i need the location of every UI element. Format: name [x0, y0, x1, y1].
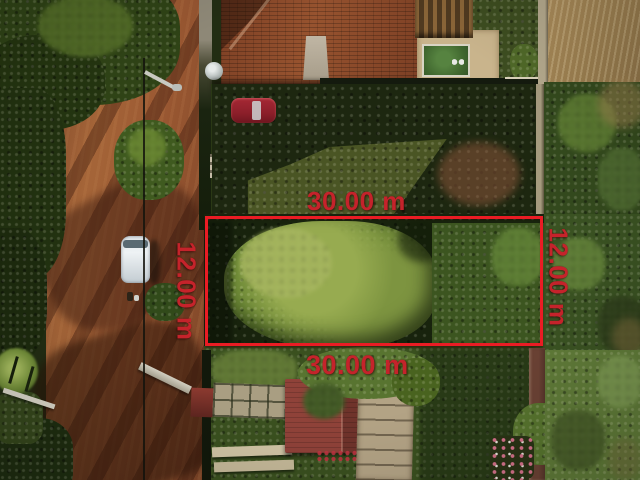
lot-boundary-rectangle — [205, 216, 543, 346]
backyard-right-wall — [536, 84, 544, 218]
wooden-pergola — [415, 0, 473, 38]
right-veg-bottom-light — [598, 356, 640, 408]
red-car-windshield — [252, 101, 261, 120]
measurement-label-bottom: 30.00 m — [306, 350, 409, 381]
aerial-lot-photo: 30.00 m 30.00 m 12.00 m 12.00 m — [0, 0, 640, 480]
dry-grass-field — [546, 0, 640, 90]
right-dry-patch — [598, 80, 640, 128]
pool-garden-bush — [510, 44, 538, 80]
pool-ladder — [452, 58, 464, 66]
roadside-tree-highlight — [128, 128, 166, 166]
backyard-dirt-patch — [438, 142, 520, 206]
right-veg-highlight-2 — [598, 148, 640, 210]
dark-red-structure — [191, 388, 214, 418]
chimney — [303, 36, 329, 80]
utility-pole — [143, 58, 145, 480]
measurement-label-top: 30.00 m — [307, 186, 406, 217]
flower-bed — [490, 436, 534, 480]
right-veg-bottom-brown — [608, 438, 640, 480]
stone-pavers — [212, 383, 289, 420]
road-object-light — [134, 295, 139, 301]
left-edge-trees-mid — [0, 228, 47, 363]
measurement-label-left: 12.00 m — [171, 242, 202, 341]
roof-edge-flowers — [316, 450, 358, 463]
right-veg-bottom-dark-bush — [551, 410, 605, 470]
side-wall-vertical-top — [538, 0, 548, 88]
measurement-label-right: 12.00 m — [543, 228, 574, 327]
canopy-over-house-3 — [303, 383, 345, 419]
road-object-dark — [127, 292, 133, 301]
street-lamp-head — [172, 84, 182, 91]
water-tank — [205, 62, 223, 80]
